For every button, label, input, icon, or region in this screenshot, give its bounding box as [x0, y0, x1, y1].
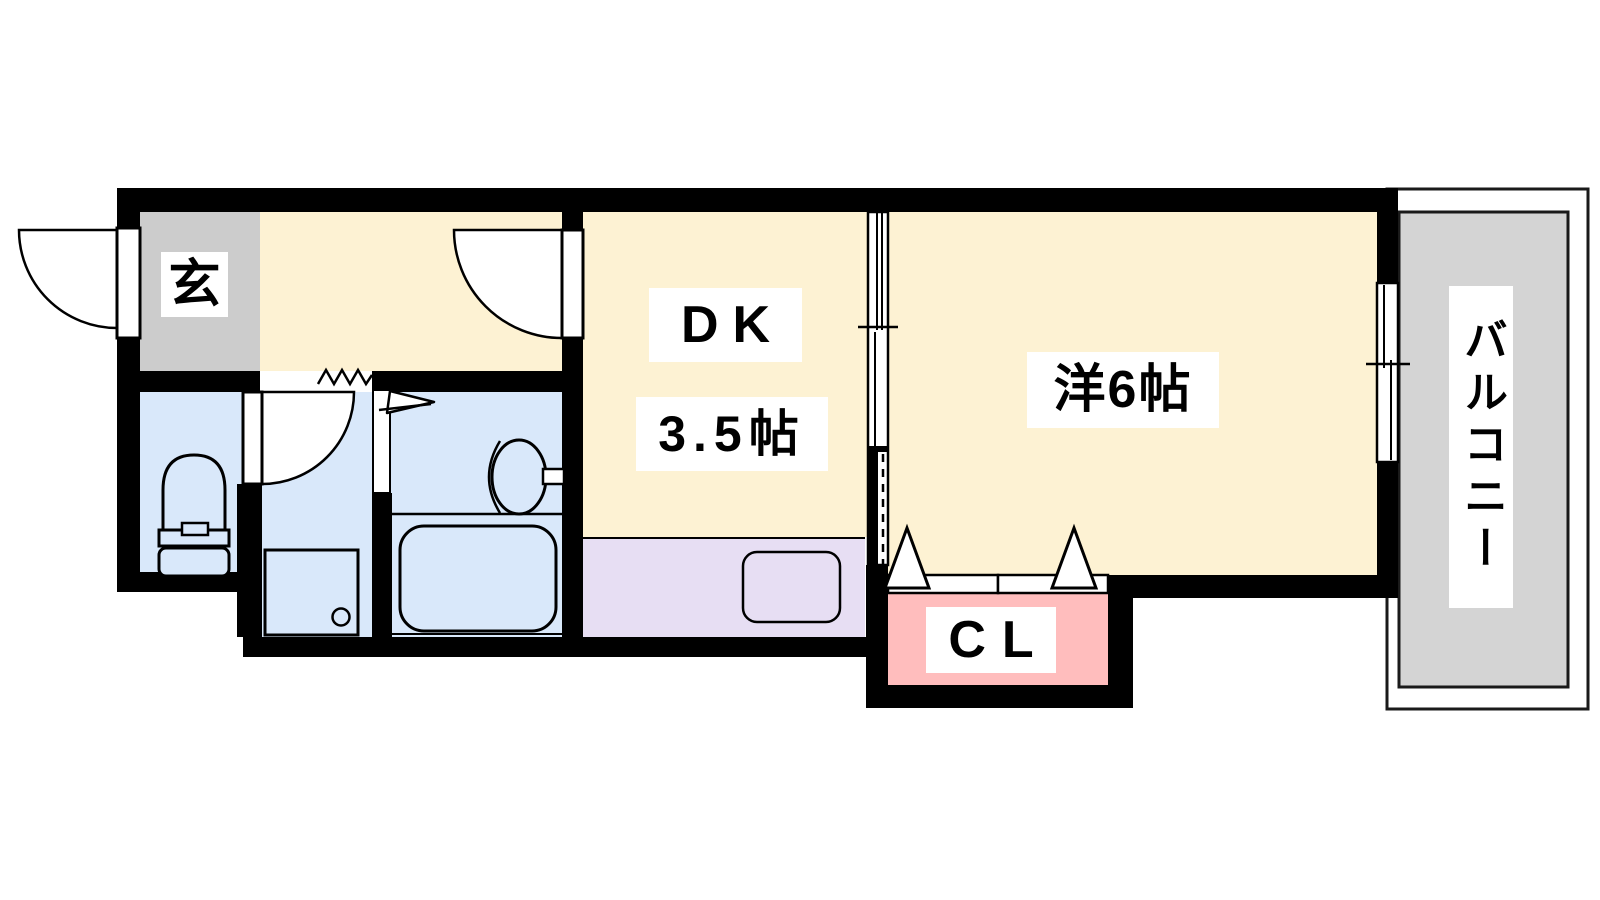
wall-segment: [562, 338, 583, 657]
wall-segment: [1377, 460, 1398, 598]
toilet: [159, 455, 229, 576]
wall-segment: [117, 188, 1398, 212]
floor-plan: 玄 DK 3.5帖 洋6帖 CL バルコニー: [0, 0, 1600, 900]
wall-segment: [562, 212, 583, 230]
western-room-label: 洋6帖: [1027, 352, 1219, 428]
wall-segment: [866, 685, 1133, 708]
dk-size-label: 3.5帖: [636, 397, 828, 471]
bathtub: [392, 514, 562, 634]
wall-segment: [140, 371, 260, 392]
genkan-label: 玄: [161, 252, 228, 317]
wall-segment: [237, 484, 262, 637]
step-zigzag: [318, 370, 372, 384]
wall-segment: [372, 493, 392, 637]
entrance-door: [19, 228, 140, 338]
wall-segment: [1377, 212, 1398, 285]
wall-segment: [372, 371, 583, 392]
closet-label: CL: [926, 607, 1056, 673]
wall-segment: [1108, 575, 1398, 598]
dining-kitchen-floor: [583, 212, 868, 537]
washing-machine-pan: [265, 550, 358, 635]
wall-segment: [117, 337, 140, 592]
wall-segment: [243, 637, 888, 657]
dk-label: DK: [649, 288, 802, 362]
wall-segment: [1108, 598, 1133, 685]
balcony-label: バルコニー: [1449, 286, 1513, 608]
